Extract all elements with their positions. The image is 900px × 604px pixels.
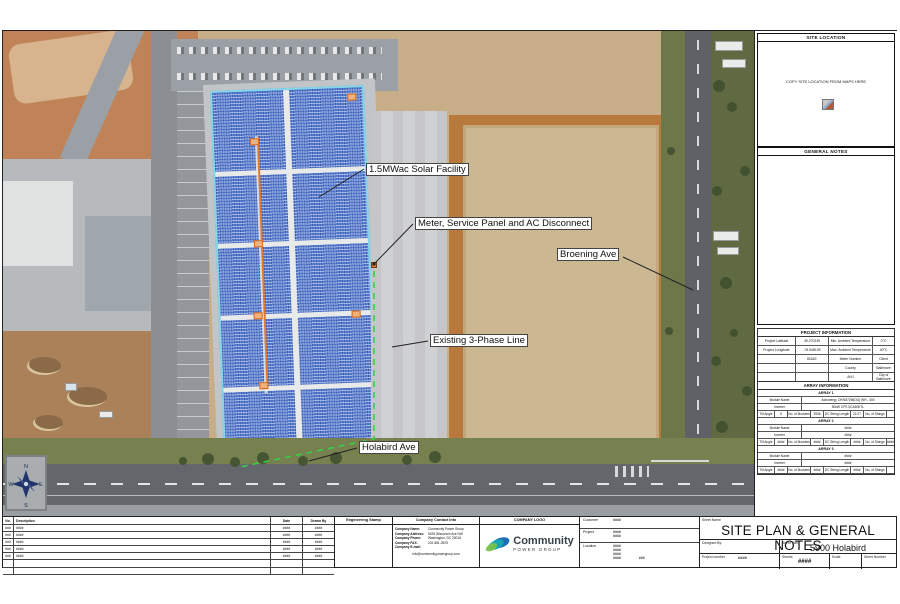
sheet-name-area: Sheet Name SITE PLAN & GENERAL NOTES — [700, 517, 896, 540]
sheets-value: #### — [780, 559, 829, 565]
array-spec-value: #### — [811, 439, 824, 445]
sheet-row-2: Designed By: Sheet Title 5900 Holabird — [700, 540, 896, 554]
sheet-name-label: Sheet Name — [702, 518, 721, 522]
array-spec-row: Tilt Angle####No. of Modules####DC Strin… — [758, 439, 894, 446]
construction-equipment — [99, 411, 113, 418]
compass-e: E — [39, 482, 43, 488]
sheet-title-cell: Sheet Title 5900 Holabird — [780, 540, 896, 553]
company-contact-section: Company Contact Info Company Name: Compa… — [393, 517, 480, 567]
scale-cell: Scale — [830, 554, 862, 569]
revision-cell: #### — [14, 525, 271, 531]
array-spec-value: #### — [775, 439, 788, 445]
project-info-cell — [796, 364, 829, 372]
revision-cell: ### — [3, 546, 14, 552]
array-spec-value: 3936 — [811, 411, 824, 417]
customer-row: Customer #### — [580, 517, 699, 529]
array-spec-value: #### — [775, 467, 788, 473]
array-spec-label: DC String Length — [824, 439, 851, 445]
revision-cell: #### — [271, 525, 303, 531]
project-info-cell: Baltimore — [873, 364, 894, 372]
company-email-value: info@communitypowergroup.com — [393, 552, 479, 556]
equipment-marker — [254, 240, 263, 247]
meter-location-marker — [371, 262, 377, 268]
terrain-concrete-pad — [3, 181, 73, 266]
project-info-row: Project Longitude-76.548109Max. Ambient … — [758, 346, 894, 355]
project-information-title: PROJECT INFORMATION — [758, 329, 894, 337]
array-subheader: ARRAY 2 — [758, 418, 894, 425]
location-line: #### — [613, 556, 621, 560]
revision-cell: ### — [3, 525, 14, 531]
project-number-label: Project number — [702, 555, 725, 559]
location-label: Location — [583, 544, 613, 568]
project-info-cell: AHJ — [829, 373, 873, 381]
annotation-3-phase-line: Existing 3-Phase Line — [430, 334, 528, 347]
project-line: #### — [613, 534, 699, 538]
revision-col-header: No. — [3, 517, 14, 524]
designed-by-label: Designed By: — [702, 541, 722, 545]
array-spec-label: Tilt Angle — [758, 439, 775, 445]
array-module-row: Module NameAstronergy CHSM72M(DG) WH - 4… — [758, 397, 894, 404]
location-extra: ### — [639, 556, 645, 560]
project-information-body: Project Latitude39.270239Min. Ambient Te… — [758, 337, 894, 381]
revision-row — [3, 560, 334, 567]
project-info-cell: Project Longitude — [758, 346, 796, 354]
project-info-row: AHJCity of Baltimore — [758, 373, 894, 381]
community-power-group-logo-icon — [485, 532, 511, 556]
sheet-row-3: Project number #### Sheets #### Scale Sh… — [700, 554, 896, 569]
project-info-cell — [758, 364, 796, 372]
site-map: 1.5MWac Solar Facility Meter, Service Pa… — [3, 31, 754, 516]
equipment-marker — [254, 312, 263, 319]
revision-cell: #### — [303, 546, 334, 552]
annotation-solar-facility: 1.5MWac Solar Facility — [366, 163, 469, 176]
array-spec-label: Tilt Angle — [758, 411, 775, 417]
revision-cell: #### — [271, 546, 303, 552]
sheet-number-label: Sheet Number — [864, 555, 886, 559]
project-info-cell — [796, 373, 829, 381]
parking-lot-west — [177, 91, 209, 469]
array-spec-value: #### — [811, 467, 824, 473]
array-subheader: ARRAY 3 — [758, 446, 894, 453]
array-spec-label: DC String Length — [824, 411, 851, 417]
revision-cell: #### — [14, 553, 271, 559]
array-spec-value — [887, 467, 894, 473]
project-number-cell: Project number #### — [700, 554, 780, 569]
project-info-cell: BG&E — [796, 355, 829, 363]
inverter-label: Inverter — [758, 460, 802, 466]
project-info-row: BG&EMeter NumberClient — [758, 355, 894, 364]
stop-line — [651, 460, 709, 462]
revision-row: ############### — [3, 525, 334, 532]
compass-w: W — [8, 482, 14, 488]
revision-cell — [3, 568, 14, 574]
company-logo-header: COMPANY LOGO — [480, 517, 579, 525]
project-info-cell: Min. Ambient Temperature — [829, 337, 873, 345]
contact-labels: Company Name: Company Address: Company P… — [395, 527, 428, 550]
location-values: #### #### #### #### ### — [613, 544, 699, 568]
compass-s: S — [24, 503, 28, 509]
annotation-broening-ave: Broening Ave — [557, 248, 619, 261]
revision-cell: ### — [3, 539, 14, 545]
array-spec-label: Tilt Angle — [758, 467, 775, 473]
array-spec-value: #### — [887, 439, 894, 445]
trailer — [717, 247, 739, 255]
array-information-body: ARRAY 1Module NameAstronergy CHSM72M(DG)… — [758, 390, 894, 474]
sidewalk-south — [3, 505, 754, 516]
module-name-value: #### — [802, 453, 894, 459]
company-logo: Community POWER GROUP — [480, 532, 579, 556]
terrain-access-road-west — [151, 31, 177, 466]
project-info-cell: County — [829, 364, 873, 372]
company-logo-section: COMPANY LOGO Community POWER GROUP — [480, 517, 580, 567]
project-number-value: #### — [738, 555, 747, 560]
grass-strip-east — [661, 31, 685, 465]
array-spec-value — [887, 411, 894, 417]
revision-cell — [303, 568, 334, 574]
revision-cell — [14, 568, 271, 574]
sheet-title-value: 5900 Holabird — [780, 543, 896, 553]
revision-table: No.DescriptionDateDrawn By #############… — [3, 517, 335, 567]
revision-cell: #### — [303, 553, 334, 559]
module-name-value: Astronergy CHSM72M(DG) WH - 400 — [802, 397, 894, 403]
road-holabird-ave — [3, 464, 754, 505]
inverter-value: #### — [802, 432, 894, 438]
revision-cell: #### — [271, 539, 303, 545]
company-contact-header: Company Contact Info — [393, 517, 479, 525]
terrain-concrete-pad2 — [85, 216, 151, 311]
compass-center — [23, 481, 28, 486]
project-info-cell: 40°C — [873, 346, 894, 354]
revision-col-header: Drawn By — [303, 517, 334, 524]
revision-cell — [271, 568, 303, 574]
revision-cell: #### — [14, 539, 271, 545]
compass-rose: N E S W — [5, 455, 47, 511]
sheet-info-section: Sheet Name SITE PLAN & GENERAL NOTES Des… — [700, 517, 896, 567]
annotation-holabird-ave: Holabird Ave — [359, 441, 419, 454]
solar-array — [210, 85, 379, 473]
array-spec-label: DC String Length — [824, 467, 851, 473]
inverter-label: Inverter — [758, 432, 802, 438]
company-contact-grid: Company Name: Company Address: Company P… — [393, 525, 479, 550]
project-info-cell: -76.548109 — [796, 346, 829, 354]
trailer — [715, 41, 743, 51]
equipment-marker — [250, 138, 259, 145]
site-location-box: COPY SITE LOCATION FROM MAPS HERE — [757, 41, 895, 147]
array-inverter-row: Inverter#### — [758, 432, 894, 439]
location-line-last: #### ### — [613, 556, 699, 560]
equipment-marker — [347, 93, 356, 100]
equipment-marker — [351, 310, 360, 317]
array-subheader: ARRAY 1 — [758, 390, 894, 397]
road-broening-ave — [685, 31, 711, 506]
revision-cell: #### — [303, 525, 334, 531]
inverter-label: Inverter — [758, 404, 802, 410]
revision-cell: ### — [3, 553, 14, 559]
brand-subtitle: POWER GROUP — [513, 547, 574, 552]
annotation-meter-panel: Meter, Service Panel and AC Disconnect — [415, 217, 592, 230]
road-dashed-line — [3, 483, 754, 485]
revision-col-header: Description — [14, 517, 271, 524]
revision-cell — [14, 560, 271, 566]
array-spec-value: #### — [851, 439, 864, 445]
logo-text: Community POWER GROUP — [513, 536, 574, 552]
array-spec-label: No. of Strings — [864, 411, 887, 417]
drawing-sheet: 1.5MWac Solar Facility Meter, Service Pa… — [0, 0, 900, 604]
compass-n: N — [24, 464, 28, 470]
revision-table-header: No.DescriptionDateDrawn By — [3, 517, 334, 525]
revision-row: ############### — [3, 532, 334, 539]
array-information-table: ARRAY INFORMATION ARRAY 1Module NameAstr… — [757, 381, 895, 475]
revision-cell: #### — [303, 532, 334, 538]
general-notes-box — [757, 155, 895, 325]
trailer — [713, 231, 739, 241]
sheets-cell: Sheets #### — [780, 554, 830, 569]
project-row: Project #### #### — [580, 529, 699, 543]
inverter-value: #### — [802, 460, 894, 466]
construction-equipment — [65, 383, 77, 391]
project-information-table: PROJECT INFORMATION Project Latitude39.2… — [757, 328, 895, 382]
terrain-dirt-pile — [33, 415, 63, 431]
project-info-cell: City of Baltimore — [873, 373, 894, 381]
sheet-frame: 1.5MWac Solar Facility Meter, Service Pa… — [2, 30, 897, 568]
revision-cell: #### — [271, 532, 303, 538]
project-info-cell: 39.270239 — [796, 337, 829, 345]
road-centerline — [697, 31, 699, 506]
array-spec-row: Tilt Angle5No. of Modules3936DC String L… — [758, 411, 894, 418]
project-values: #### #### — [613, 530, 699, 541]
right-panel: SITE LOCATION COPY SITE LOCATION FROM MA… — [754, 31, 898, 516]
company-phone-value: 202-681-0925 — [428, 541, 477, 546]
array-spec-label: No. of Modules — [788, 467, 811, 473]
location-row: Location #### #### #### #### ### — [580, 543, 699, 569]
road-lane-line — [3, 495, 754, 496]
engineering-stamp-header: Engineering Stamp — [335, 517, 392, 525]
project-info-cell: Project Latitude — [758, 337, 796, 345]
array-spec-value: 5 — [775, 411, 788, 417]
parked-cars-row — [177, 47, 382, 54]
terrain-dirt-southwest — [3, 331, 153, 441]
revision-cell: #### — [14, 546, 271, 552]
array-spec-value: 22.27 — [851, 411, 864, 417]
company-email-label: Company E-mail: — [395, 545, 428, 550]
project-info-cell: Meter Number — [829, 355, 873, 363]
array-spec-label: No. of Strings — [864, 439, 887, 445]
array-module-row: Module Name#### — [758, 453, 894, 460]
revision-cell: ### — [3, 532, 14, 538]
site-location-note: COPY SITE LOCATION FROM MAPS HERE — [758, 79, 894, 84]
customer-label: Customer — [583, 518, 613, 527]
module-name-value: #### — [802, 425, 894, 431]
project-info-row: CountyBaltimore — [758, 364, 894, 373]
revision-col-header: Date — [271, 517, 303, 524]
gravel-pad — [463, 125, 659, 465]
title-block: No.DescriptionDateDrawn By #############… — [3, 516, 896, 567]
equipment-marker — [259, 382, 268, 389]
sheet-number-cell: Sheet Number — [862, 554, 896, 569]
project-info-row: Project Latitude39.270239Min. Ambient Te… — [758, 337, 894, 346]
array-information-title: ARRAY INFORMATION — [758, 382, 894, 390]
brand-name: Community — [513, 536, 574, 547]
map-thumbnail-icon — [822, 99, 834, 110]
array-spec-label: No. of Strings — [864, 467, 887, 473]
array-spec-label: No. of Modules — [788, 439, 811, 445]
module-name-label: Module Name — [758, 453, 802, 459]
customer-value: #### — [613, 518, 699, 527]
revision-cell: #### — [14, 532, 271, 538]
terrain-dirt-pile — [27, 357, 61, 375]
revision-cell — [303, 560, 334, 566]
inverter-value: 50kW CPS SCA50KTL — [802, 404, 894, 410]
revision-cell: #### — [303, 539, 334, 545]
project-info-cell: Max. Ambient Temperature — [829, 346, 873, 354]
project-info-cell — [758, 373, 796, 381]
module-name-label: Module Name — [758, 425, 802, 431]
engineering-stamp-section: Engineering Stamp — [335, 517, 393, 567]
revision-cell — [3, 560, 14, 566]
project-info-cell: 0°C — [873, 337, 894, 345]
customer-section: Customer #### Project #### #### Location… — [580, 517, 700, 567]
contact-values: Community Power Group 5028 Wisconsin Ave… — [428, 527, 477, 550]
compass-star: N E S W — [7, 459, 45, 509]
crosswalk — [615, 466, 649, 477]
array-inverter-row: Inverter50kW CPS SCA50KTL — [758, 404, 894, 411]
revision-cell — [271, 560, 303, 566]
scale-label: Scale — [832, 555, 840, 559]
array-spec-row: Tilt Angle####No. of Modules####DC Strin… — [758, 467, 894, 474]
project-info-cell — [758, 355, 796, 363]
revision-table-body: ########################################… — [3, 525, 334, 575]
trailer — [722, 59, 746, 68]
array-walkway — [283, 90, 304, 468]
revision-row — [3, 568, 334, 575]
array-inverter-row: Inverter#### — [758, 460, 894, 467]
project-info-cell: Client — [873, 355, 894, 363]
module-name-label: Module Name — [758, 397, 802, 403]
designed-by-cell: Designed By: — [700, 540, 780, 553]
revision-row: ############### — [3, 546, 334, 553]
array-spec-label: No. of Modules — [788, 411, 811, 417]
project-label: Project — [583, 530, 613, 541]
array-module-row: Module Name#### — [758, 425, 894, 432]
revision-cell: #### — [271, 553, 303, 559]
revision-row: ############### — [3, 553, 334, 560]
array-spec-value: #### — [851, 467, 864, 473]
revision-row: ############### — [3, 539, 334, 546]
